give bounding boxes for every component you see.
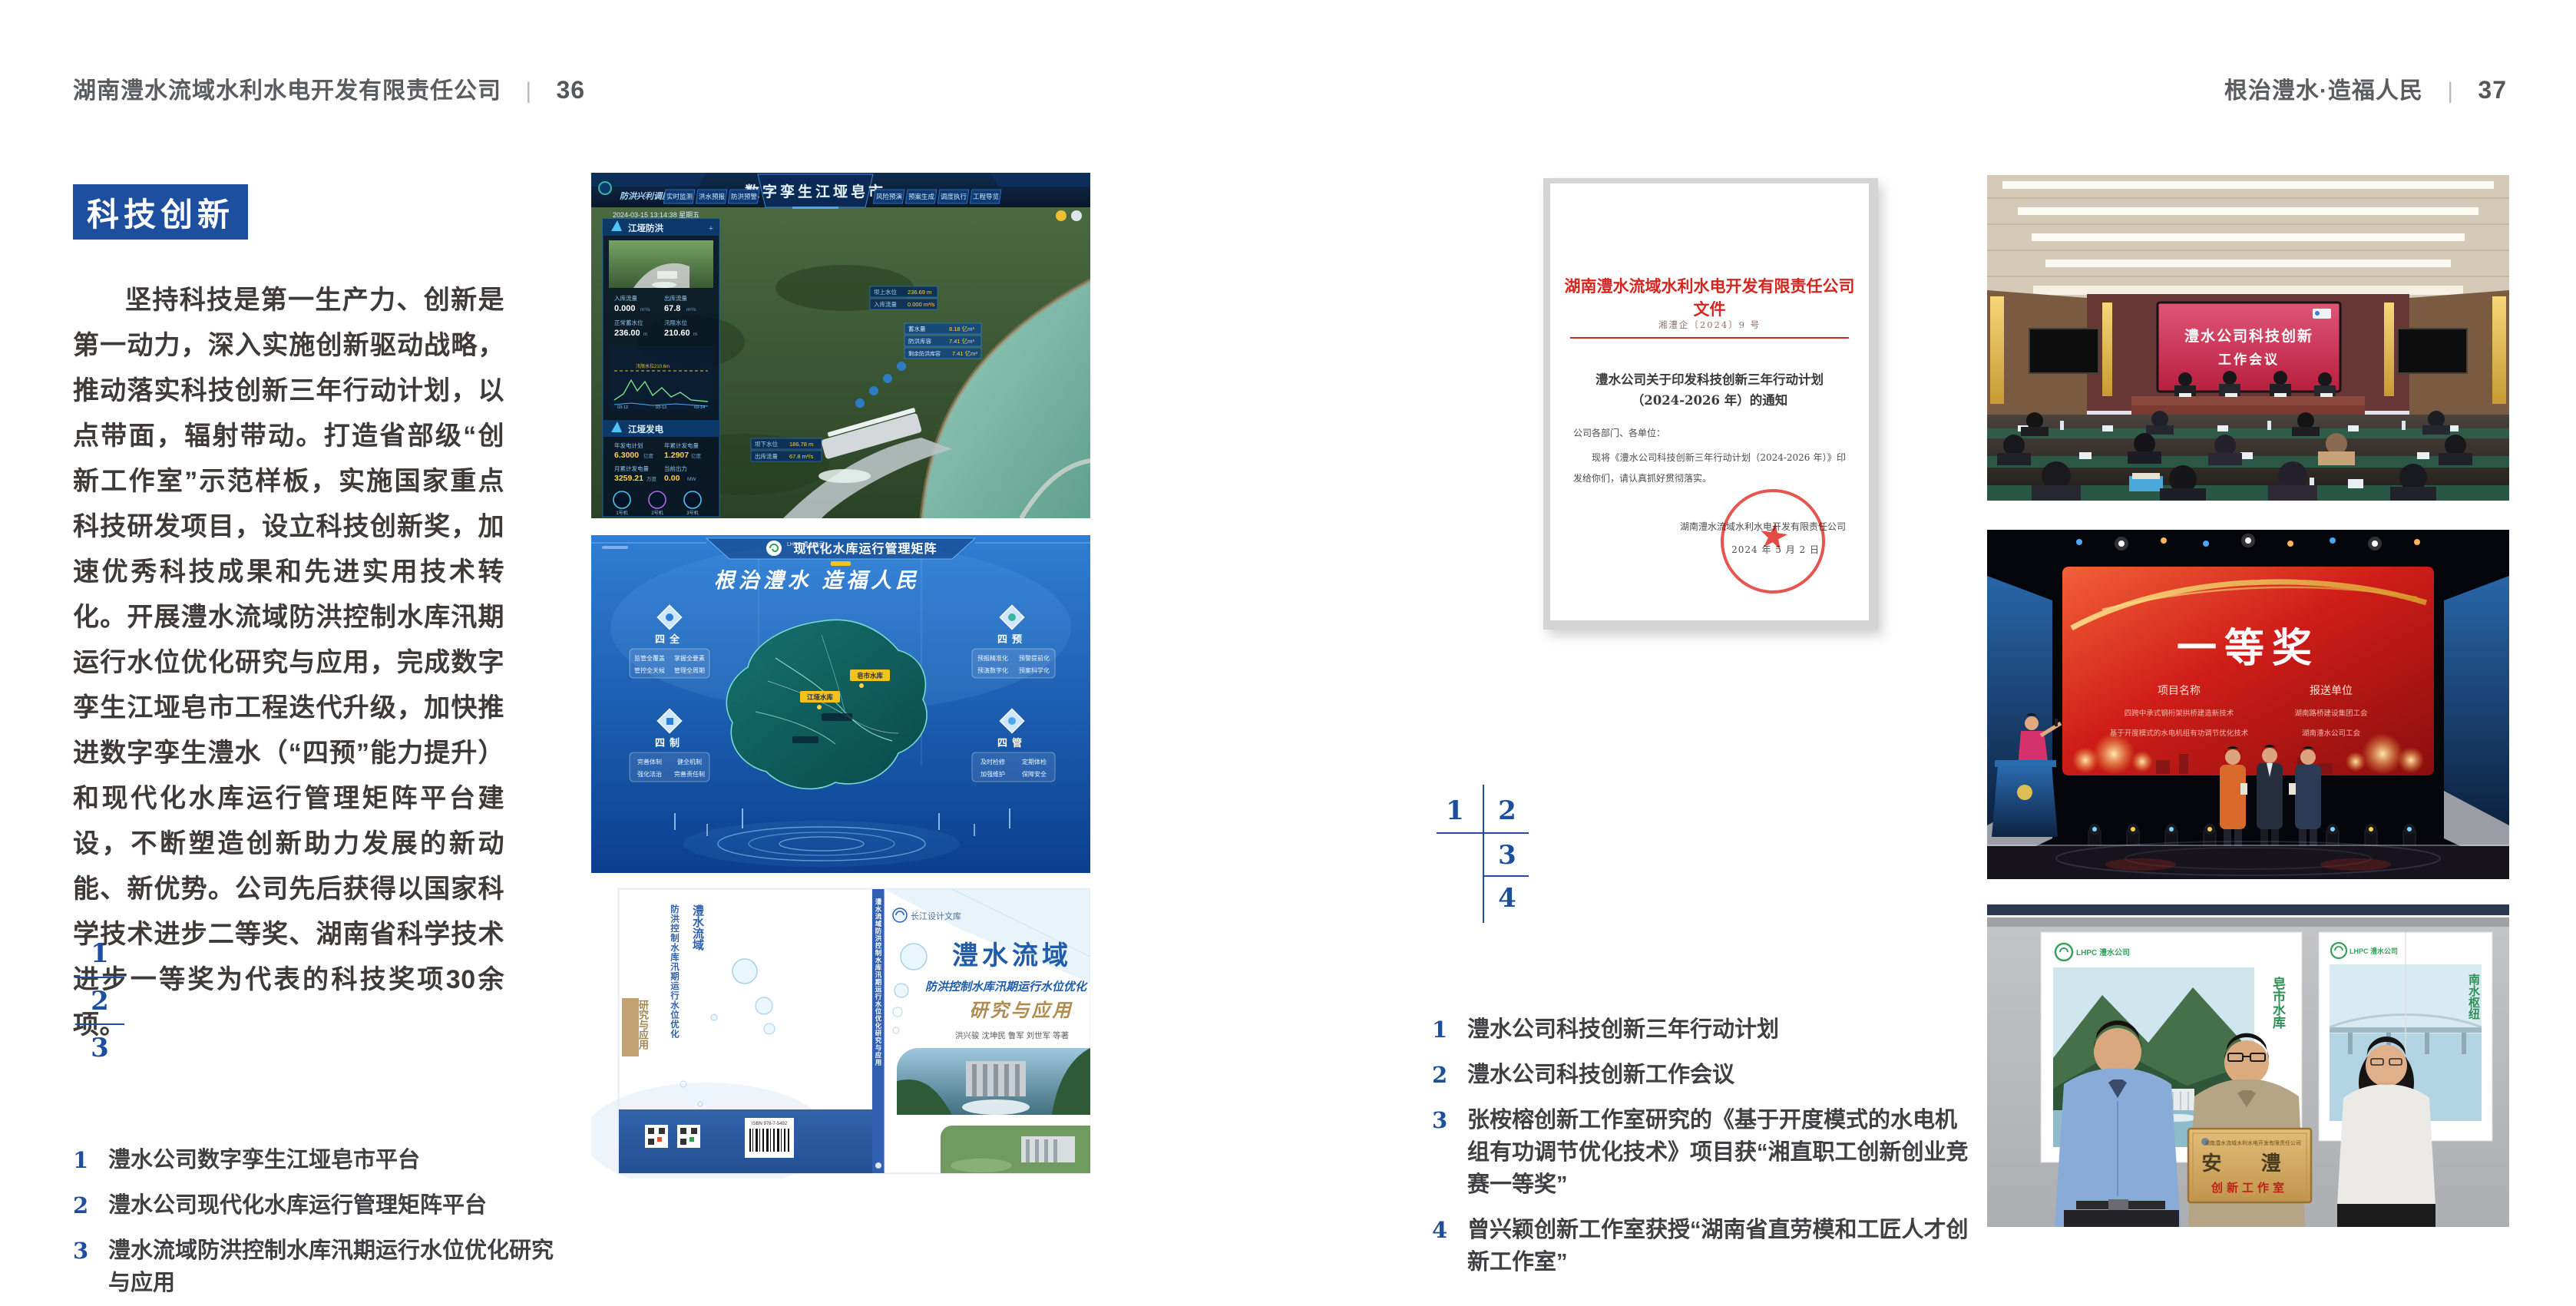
group-name: 四管	[997, 737, 1027, 749]
award-unit: 湖南澧水公司工会	[2302, 729, 2361, 738]
stat-unit: m	[693, 332, 697, 337]
led-screen: 一等奖 项目名称 报送单位 四跨中承式钢桁架拱桥建造新技术 湖南路桥建设集团工会…	[2062, 567, 2434, 775]
book-scene: ISBN 978-7-5492 长江设计文库 澧水流域 防洪控制水库汛期运行水位…	[591, 883, 1090, 1179]
stat-label: 入库流量	[614, 294, 637, 302]
index-divider	[1437, 832, 1529, 834]
chip-value: 7.41 亿m³	[952, 349, 977, 357]
figure-digital-twin-platform: 数字孪生江垭皂市 防洪兴利调度 实时监测 洪水预报 防洪预警 风险预演 预案生成…	[591, 173, 1090, 518]
slogan-text: 根治澧水·造福人民	[2224, 78, 2423, 104]
group-name: 四全	[655, 633, 684, 645]
chip-label: 坝下水位	[755, 440, 778, 448]
screen-line1: 澧水公司科技创新	[2184, 327, 2313, 345]
figure-index-1: 1	[73, 938, 127, 969]
award-project: 基于开度模式的水电机组有功调节优化技术	[2110, 729, 2249, 738]
header-divider: |	[525, 78, 532, 104]
caption-number: 3	[73, 1235, 108, 1299]
group-item: 健全机制	[677, 758, 702, 765]
group-item: 预演数字化	[977, 666, 1008, 674]
company-name: 湖南澧水流域水利水电开发有限责任公司	[73, 78, 501, 104]
poster-brand: LHPC 澧水公司	[2076, 947, 2130, 957]
matrix-scene: LHPC 澧水公司 现代化水库运行管理矩阵 根治澧水 造福人民 皂市水库 江垭水…	[591, 535, 1090, 873]
stat-unit: m³/s	[640, 307, 650, 312]
turbine-gauges: 1号机 2号机 3号机	[613, 491, 701, 516]
group-item: 掌握全要素	[674, 654, 705, 662]
stat-label: 当前出力	[664, 465, 687, 472]
caption-row: 4 曾兴颖创新工作室获授“湖南省直劳模和工匠人才创新工作室”	[1432, 1214, 1969, 1278]
stat-unit: MW	[687, 477, 696, 482]
level-chart: 汛限水位210.6m 03-12 03-13 03-14	[609, 346, 713, 411]
caption-row: 2 澧水公司现代化水库运行管理矩阵平台	[73, 1189, 564, 1222]
timestamp: 2024-03-15 13:14:38 星期五	[613, 211, 699, 219]
group-item: 预警提前化	[1019, 654, 1050, 662]
plaque-scene: LHPC 澧水公司 LHPC 澧水公司	[1987, 904, 2509, 1227]
caption-row: 3 澧水流域防洪控制水库汛期运行水位优化研究与应用	[73, 1235, 564, 1299]
award-scene: 一等奖 项目名称 报送单位 四跨中承式钢桁架拱桥建造新技术 湖南路桥建设集团工会…	[1987, 530, 2509, 879]
publisher-logo-icon	[893, 908, 907, 922]
official-stamp: ★	[1714, 482, 1832, 600]
stage-side-panel-right	[2444, 576, 2509, 825]
panel-title: 江垭防洪	[628, 223, 663, 233]
barcode: ISBN 978-7-5492	[745, 1118, 794, 1158]
stat-unit: 亿度	[643, 452, 654, 459]
index-divider	[1483, 875, 1529, 877]
chip-value: 236.69 m	[908, 289, 931, 296]
matrix-title: 现代化水库运行管理矩阵	[793, 541, 937, 556]
caption-number: 1	[73, 1144, 108, 1176]
book-series: 研究与应用	[970, 1000, 1073, 1021]
caption-text: 澧水公司数字孪生江垭皂市平台	[108, 1144, 564, 1176]
stamp-star-icon: ★	[1722, 508, 1825, 563]
stat-label: 汛限水位	[664, 319, 687, 326]
cover-dam-photo	[897, 1048, 1090, 1115]
screen-line2: 工作会议	[2218, 352, 2280, 367]
wall-light	[2492, 296, 2506, 404]
unit-label: 2号机	[651, 510, 663, 516]
cover-secondary-photo	[941, 1126, 1090, 1173]
figure-innovation-studio-plaque-photo: LHPC 澧水公司 LHPC 澧水公司	[1987, 904, 2509, 1227]
wall-light	[2384, 303, 2394, 396]
figure-official-document: 湖南澧水流域水利水电开发有限责任公司文件 湘澧企〔2024〕9 号 澧水公司关于…	[1543, 178, 1878, 630]
document-paper: 湖南澧水流域水利水电开发有限责任公司文件 湘澧企〔2024〕9 号 澧水公司关于…	[1550, 184, 1869, 620]
tab[interactable]: 调度执行	[941, 193, 967, 200]
document-body: 现将《澧水公司科技创新三年行动计划（2024-2026 年）》印发给你们，请认真…	[1573, 448, 1846, 489]
right-page-header: 根治澧水·造福人民 | 37	[2224, 71, 2507, 105]
book-title: 澧水流域	[952, 941, 1072, 970]
document-red-rule	[1570, 337, 1849, 339]
map-label: 皂市水库	[857, 672, 884, 679]
tab[interactable]: 洪水预报	[699, 193, 726, 200]
left-captions: 1 澧水公司数字孪生江垭皂市平台 2 澧水公司现代化水库运行管理矩阵平台 3 澧…	[73, 1144, 564, 1306]
stat-value: 0.000	[614, 304, 636, 313]
caption-row: 1 澧水公司数字孪生江垭皂市平台	[73, 1144, 564, 1176]
stat-label: 正常蓄水位	[614, 319, 643, 326]
figure-index-1: 1	[1434, 795, 1476, 826]
back-cover-series-vertical: 研究与应用	[636, 1000, 650, 1084]
stat-label: 出库流量	[664, 294, 687, 302]
chip-label: 蓄水量	[908, 325, 926, 332]
plaque-org: 湖南澧水流域水利水电开发有限责任公司	[2204, 1139, 2301, 1146]
stat-value: 0.00	[664, 474, 680, 483]
group-item: 监管全覆盖	[634, 654, 665, 662]
group-name: 四制	[655, 737, 684, 749]
caption-text: 曾兴颖创新工作室获授“湖南省直劳模和工匠人才创新工作室”	[1467, 1214, 1969, 1278]
group-item: 及时检修	[980, 758, 1005, 765]
group-item: 加强维护	[980, 770, 1005, 778]
alert-icon[interactable]	[1056, 210, 1066, 221]
spine-title-vertical: 澧水流域防洪控制水库汛期运行水位优化研究与应用	[874, 898, 883, 1129]
page-number-right: 37	[2478, 76, 2507, 104]
document-title: 澧水公司关于印发科技创新三年行动计划 （2024-2026 年）的通知	[1566, 369, 1853, 411]
group-item: 定期体检	[1022, 758, 1047, 765]
chip-label: 坝上水位	[874, 288, 897, 296]
slogan-calligraphy: 根治澧水 造福人民	[714, 569, 921, 592]
figure-index-2: 2	[1486, 795, 1528, 826]
stat-label: 月累计发电量	[614, 465, 649, 472]
panel-title: 江垭发电	[628, 424, 663, 435]
left-page-header: 湖南澧水流域水利水电开发有限责任公司 | 36	[73, 71, 585, 105]
group-item: 完善体制	[637, 758, 662, 765]
wall-light	[2102, 303, 2112, 396]
poster-left-title-vertical: 皂市水库	[2268, 977, 2287, 1076]
document-title-line2: （2024-2026 年）的通知	[1566, 390, 1853, 411]
document-salutation: 公司各部门、各单位：	[1573, 426, 1665, 439]
chart-tick: 03-12	[617, 405, 628, 410]
chart-annotation: 汛限水位210.6m	[636, 363, 670, 369]
award-podium	[1992, 760, 2058, 837]
stat-label: 年发电计划	[614, 441, 643, 449]
caption-row: 1 澧水公司科技创新三年行动计划	[1432, 1013, 1969, 1046]
figure-book-cover: ISBN 978-7-5492 长江设计文库 澧水流域 防洪控制水库汛期运行水位…	[591, 883, 1090, 1179]
chip-label: 防洪库容	[908, 337, 931, 345]
page-number-left: 36	[556, 76, 585, 104]
wall-light	[1990, 296, 2004, 404]
document-title-line1: 澧水公司关于印发科技创新三年行动计划	[1566, 369, 1853, 390]
index-divider	[75, 977, 124, 978]
book-subtitle: 防洪控制水库汛期运行水位优化	[925, 980, 1088, 994]
stat-value: 1.2907	[664, 451, 689, 460]
chip-value: 186.78 m	[789, 441, 813, 448]
stat-unit: m	[643, 332, 647, 337]
caption-text: 澧水公司科技创新工作会议	[1467, 1059, 1969, 1091]
index-divider	[1483, 785, 1484, 923]
right-captions: 1 澧水公司科技创新三年行动计划 2 澧水公司科技创新工作会议 3 张桉榕创新工…	[1432, 1013, 1969, 1291]
group-item: 预案科学化	[1019, 666, 1050, 674]
caption-number: 3	[1432, 1104, 1467, 1201]
chip-value: 8.18 亿m³	[949, 325, 974, 332]
map-label: 江垭水库	[807, 693, 834, 701]
poster-brand: LHPC 澧水公司	[2349, 947, 2398, 955]
lhpc-logo-icon	[766, 541, 782, 556]
tab[interactable]: 风险预演	[876, 193, 903, 200]
header-divider: |	[2447, 78, 2454, 104]
figure-index-4: 4	[1486, 883, 1528, 914]
wall-tv-left	[2029, 329, 2098, 373]
tab[interactable]: 防洪预警	[731, 193, 758, 200]
chart-tick: 03-14	[694, 405, 705, 410]
chip-value: 67.8 m³/s	[789, 453, 814, 460]
chip-value: 0.000 m³/s	[908, 301, 935, 308]
figure-index-2: 2	[73, 986, 127, 1017]
innovation-plaque: 湖南澧水流域水利水电开发有限责任公司 安 澧 创新工作室	[2188, 1129, 2311, 1202]
expand-icon[interactable]: +	[709, 224, 713, 233]
group-item: 管控全天候	[634, 666, 665, 674]
nav-tabs-left[interactable]: 实时监测 洪水预报 防洪预警	[663, 190, 759, 203]
section-title: 科技创新	[73, 184, 248, 240]
group-item: 保障安全	[1022, 770, 1047, 778]
back-cover-title-vertical: 澧水流域	[689, 904, 706, 1020]
figure-award-ceremony-photo: 一等奖 项目名称 报送单位 四跨中承式钢桁架拱桥建造新技术 湖南路桥建设集团工会…	[1987, 530, 2509, 879]
award-unit: 湖南路桥建设集团工会	[2294, 709, 2368, 718]
tab[interactable]: 实时监测	[666, 193, 693, 200]
book-authors: 洪兴骏 沈坤民 鲁军 刘世军 等著	[955, 1030, 1069, 1040]
stat-label: 年累计发电量	[664, 441, 699, 449]
caption-text: 澧水公司现代化水库运行管理矩阵平台	[108, 1189, 564, 1222]
index-divider	[75, 1023, 124, 1025]
award-col1: 项目名称	[2158, 684, 2201, 696]
caption-number: 2	[1432, 1059, 1467, 1091]
figure-index-3: 3	[73, 1033, 127, 1063]
stat-unit: m³/s	[686, 307, 696, 312]
stat-value: 6.3000	[614, 451, 639, 460]
caption-number: 4	[1432, 1214, 1467, 1278]
brochure-spread: 湖南澧水流域水利水电开发有限责任公司 | 36 根治澧水·造福人民 | 37 科…	[0, 0, 2576, 1306]
chip-label: 剩余防洪库容	[908, 350, 941, 357]
stat-value: 3259.21	[614, 474, 643, 483]
flood-panel: 江垭防洪 + 入库流量 0.000 m³/s 出库流量 67.8 m³/s 正常…	[603, 219, 719, 517]
digital-twin-scene: 数字孪生江垭皂市 防洪兴利调度 实时监测 洪水预报 防洪预警 风险预演 预案生成…	[591, 173, 1090, 518]
stat-value: 236.00	[614, 329, 640, 338]
body-paragraph: 坚持科技是第一生产力、创新是第一动力，深入实施创新驱动战略，推动落实科技创新三年…	[73, 278, 504, 1048]
unit-label: 1号机	[616, 510, 627, 516]
meeting-scene: 澧水公司科技创新 工作会议	[1987, 175, 2509, 501]
wall-tv-right	[2398, 329, 2467, 373]
document-header: 湖南澧水流域水利水电开发有限责任公司文件	[1564, 274, 1855, 320]
group-name: 四预	[997, 633, 1027, 645]
award-col2: 报送单位	[2310, 684, 2353, 696]
caption-text: 澧水公司科技创新三年行动计划	[1467, 1013, 1969, 1046]
caption-text: 澧水流域防洪控制水库汛期运行水位优化研究与应用	[108, 1235, 564, 1299]
tab[interactable]: 预案生成	[908, 193, 935, 200]
group-item: 完善责任制	[674, 770, 705, 778]
caption-number: 2	[73, 1189, 108, 1222]
stat-unit: 万度	[646, 475, 657, 482]
map-data-chip-storage: 蓄水量 8.18 亿m³ 防洪库容 7.41 亿m³ 剩余防洪库容 7.41 亿…	[904, 323, 981, 359]
stat-value: 67.8	[664, 304, 680, 313]
caption-row: 3 张桉榕创新工作室研究的《基于开度模式的水电机组有功调节优化技术》项目获“湘直…	[1432, 1104, 1969, 1201]
settings-icon[interactable]	[1071, 210, 1082, 221]
isbn-text: ISBN 978-7-5492	[752, 1122, 788, 1126]
poster-right-title-vertical: 南水枢纽	[2466, 974, 2482, 1066]
group-item: 管理全周期	[674, 666, 705, 674]
chip-label: 入库流量	[874, 300, 897, 308]
group-item: 预报精准化	[977, 654, 1008, 662]
chip-label: 出库流量	[755, 452, 778, 460]
tab[interactable]: 工程导览	[973, 193, 999, 200]
plaque-name: 安 澧	[2201, 1152, 2297, 1175]
caption-text: 张桉榕创新工作室研究的《基于开度模式的水电机组有功调节优化技术》项目获“湘直职工…	[1467, 1104, 1969, 1201]
figure-matrix-platform: LHPC 澧水公司 现代化水库运行管理矩阵 根治澧水 造福人民 皂市水库 江垭水…	[591, 535, 1090, 873]
back-cover-subtitle-vertical: 防洪控制水库汛期运行水位优化	[668, 904, 680, 1066]
document-number: 湘澧企〔2024〕9 号	[1550, 319, 1869, 331]
group-item: 强化法治	[637, 770, 662, 778]
chip-value: 7.41 亿m³	[949, 337, 974, 345]
dashboard-title: 数字孪生江垭皂市	[745, 183, 886, 200]
award-project: 四跨中承式钢桁架拱桥建造新技术	[2125, 709, 2234, 718]
plaque-subtitle: 创新工作室	[2211, 1181, 2288, 1195]
figure-index-3: 3	[1486, 840, 1528, 871]
caption-row: 2 澧水公司科技创新工作会议	[1432, 1059, 1969, 1091]
award-title: 一等奖	[2177, 627, 2320, 671]
publisher-name: 长江设计文库	[911, 911, 961, 921]
stat-unit: 亿度	[691, 452, 702, 459]
stat-value: 210.60	[664, 329, 690, 338]
chart-tick: 03-13	[656, 405, 666, 410]
figure-meeting-photo: 澧水公司科技创新 工作会议	[1987, 175, 2509, 501]
caption-number: 1	[1432, 1013, 1467, 1046]
unit-label: 3号机	[686, 510, 698, 516]
